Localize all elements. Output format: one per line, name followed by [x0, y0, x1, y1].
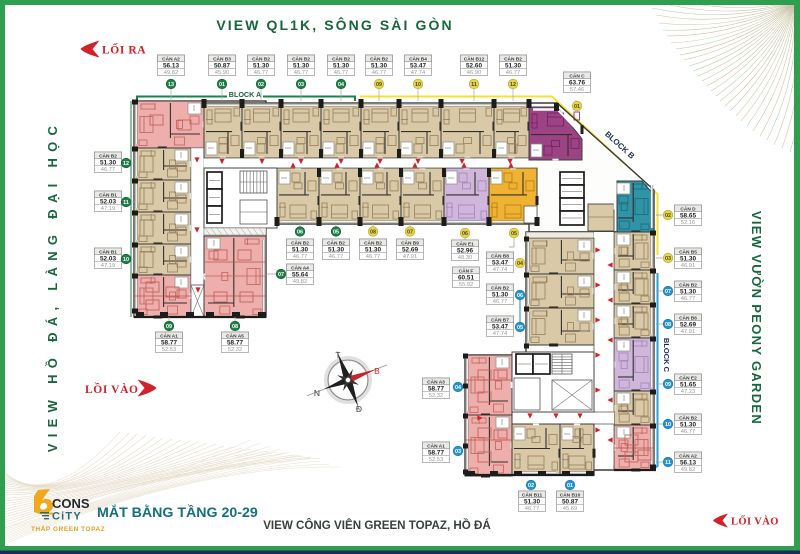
- svg-text:58.65: 58.65: [680, 212, 696, 219]
- svg-text:B: B: [374, 366, 380, 376]
- svg-text:46.77: 46.77: [294, 70, 309, 76]
- svg-text:CĂN A3: CĂN A3: [427, 378, 445, 385]
- svg-text:CĂN B8: CĂN B8: [491, 252, 509, 259]
- svg-text:55.64: 55.64: [292, 271, 308, 278]
- svg-text:51.30: 51.30: [371, 62, 387, 69]
- svg-text:46.77: 46.77: [329, 254, 344, 260]
- svg-text:52.03: 52.03: [100, 255, 116, 262]
- svg-text:46.77: 46.77: [366, 254, 381, 260]
- svg-text:CĂN E1: CĂN E1: [456, 240, 474, 247]
- svg-text:46.77: 46.77: [101, 167, 116, 173]
- svg-text:52.53: 52.53: [429, 457, 444, 463]
- svg-text:10: 10: [665, 422, 671, 428]
- svg-text:BLOCK A: BLOCK A: [229, 90, 261, 99]
- svg-text:05: 05: [511, 231, 517, 237]
- svg-text:07: 07: [407, 230, 413, 236]
- svg-text:52.69: 52.69: [402, 246, 418, 253]
- svg-text:45.90: 45.90: [215, 70, 230, 76]
- svg-text:11: 11: [471, 82, 477, 88]
- svg-text:47.74: 47.74: [493, 331, 508, 337]
- svg-text:CĂN B2: CĂN B2: [364, 239, 382, 246]
- svg-text:Đ: Đ: [356, 404, 362, 414]
- svg-text:50.87: 50.87: [214, 62, 230, 69]
- svg-text:60.51: 60.51: [458, 274, 474, 281]
- svg-text:08: 08: [232, 324, 238, 330]
- svg-text:CĂN B2: CĂN B2: [327, 239, 345, 246]
- svg-text:46.91: 46.91: [681, 263, 696, 269]
- svg-text:CONS: CONS: [52, 496, 90, 511]
- svg-text:52.96: 52.96: [457, 247, 473, 254]
- svg-text:CĂN C: CĂN C: [569, 72, 585, 79]
- svg-text:52.16: 52.16: [681, 220, 696, 226]
- svg-text:08: 08: [665, 322, 671, 328]
- svg-text:51.30: 51.30: [680, 255, 696, 262]
- svg-text:46.77: 46.77: [506, 70, 521, 76]
- svg-text:05: 05: [333, 230, 339, 236]
- svg-text:06: 06: [517, 293, 523, 299]
- svg-text:N: N: [314, 388, 320, 398]
- svg-text:CĂN B11: CĂN B11: [522, 491, 543, 498]
- svg-text:58.77: 58.77: [161, 339, 177, 346]
- svg-text:CiTY: CiTY: [52, 511, 82, 523]
- svg-text:51.30: 51.30: [292, 246, 308, 253]
- svg-text:CĂN B1: CĂN B1: [99, 248, 117, 255]
- svg-text:08: 08: [370, 230, 376, 236]
- svg-text:52.32: 52.32: [429, 393, 444, 399]
- svg-text:CĂN B2: CĂN B2: [332, 55, 350, 62]
- svg-text:LỐI VÀO: LỐI VÀO: [731, 515, 779, 528]
- svg-text:CĂN B10: CĂN B10: [560, 491, 581, 498]
- svg-text:07: 07: [278, 272, 284, 278]
- svg-text:09: 09: [376, 82, 382, 88]
- svg-text:51.30: 51.30: [333, 62, 349, 69]
- svg-text:LỒI VÀO: LỒI VÀO: [85, 381, 139, 396]
- svg-text:46.77: 46.77: [334, 70, 349, 76]
- svg-text:CĂN B2: CĂN B2: [504, 55, 522, 62]
- svg-text:51.30: 51.30: [100, 159, 116, 166]
- svg-text:09: 09: [665, 382, 671, 388]
- svg-text:03: 03: [665, 256, 671, 262]
- svg-text:CĂN A2: CĂN A2: [679, 452, 697, 459]
- svg-text:CĂN B2: CĂN B2: [679, 414, 697, 421]
- svg-text:52.69: 52.69: [680, 321, 696, 328]
- svg-text:46.77: 46.77: [372, 70, 387, 76]
- svg-text:CĂN B2: CĂN B2: [292, 55, 310, 62]
- svg-text:48.30: 48.30: [458, 255, 473, 261]
- svg-text:46.77: 46.77: [525, 506, 540, 512]
- svg-text:CĂN B4: CĂN B4: [409, 55, 427, 62]
- svg-text:MẮT BẰNG TẦNG 20-29: MẮT BẰNG TẦNG 20-29: [97, 503, 258, 521]
- svg-text:52.60: 52.60: [466, 62, 482, 69]
- svg-text:51.30: 51.30: [680, 288, 696, 295]
- svg-text:47.19: 47.19: [101, 263, 116, 269]
- svg-text:VIEW QL1K, SÔNG SÀI GÒN: VIEW QL1K, SÔNG SÀI GÒN: [216, 16, 453, 33]
- svg-text:51.30: 51.30: [253, 62, 269, 69]
- svg-text:CĂN B3: CĂN B3: [213, 55, 231, 62]
- svg-text:53.47: 53.47: [410, 62, 426, 69]
- svg-text:58.77: 58.77: [428, 449, 444, 456]
- svg-text:47.19: 47.19: [101, 206, 116, 212]
- svg-text:03: 03: [455, 449, 461, 455]
- svg-text:46.90: 46.90: [467, 70, 482, 76]
- svg-text:CĂN B2: CĂN B2: [679, 281, 697, 288]
- svg-text:04: 04: [455, 385, 461, 391]
- svg-text:58.77: 58.77: [227, 339, 243, 346]
- svg-text:CĂN B7: CĂN B7: [491, 316, 509, 323]
- svg-text:CĂN F: CĂN F: [459, 267, 474, 274]
- svg-text:52.32: 52.32: [228, 347, 243, 353]
- svg-text:THÁP GREEN TOPAZ: THÁP GREEN TOPAZ: [31, 524, 105, 533]
- svg-text:04: 04: [338, 82, 344, 88]
- svg-text:04: 04: [517, 261, 523, 267]
- svg-text:VIEW HỒ ĐÁ, LÀNG ĐẠI HỌC: VIEW HỒ ĐÁ, LÀNG ĐẠI HỌC: [45, 120, 60, 452]
- svg-text:CĂN B2: CĂN B2: [252, 55, 270, 62]
- svg-text:05: 05: [517, 325, 523, 331]
- svg-text:53.47: 53.47: [492, 323, 508, 330]
- svg-text:CĂN B5: CĂN B5: [679, 248, 697, 255]
- svg-text:56.13: 56.13: [163, 62, 179, 69]
- svg-text:51.30: 51.30: [328, 246, 344, 253]
- svg-text:LỐI RA: LỐI RA: [102, 42, 146, 57]
- svg-text:46.77: 46.77: [254, 70, 269, 76]
- svg-text:03: 03: [298, 82, 304, 88]
- svg-text:06: 06: [462, 231, 468, 237]
- svg-text:02: 02: [528, 483, 534, 489]
- svg-text:CĂN A1: CĂN A1: [427, 442, 445, 449]
- svg-text:46.77: 46.77: [493, 299, 508, 305]
- svg-text:51.30: 51.30: [293, 62, 309, 69]
- svg-text:49.82: 49.82: [164, 70, 179, 76]
- svg-text:45.69: 45.69: [563, 506, 578, 512]
- svg-text:VIEW VƯỜN PEONY GARDEN: VIEW VƯỜN PEONY GARDEN: [749, 211, 764, 425]
- svg-text:49.82: 49.82: [293, 279, 308, 285]
- svg-text:01: 01: [574, 104, 580, 110]
- svg-text:46.77: 46.77: [293, 254, 308, 260]
- svg-text:10: 10: [123, 257, 129, 263]
- svg-text:VIEW CÔNG VIÊN GREEN TOPAZ, HỒ: VIEW CÔNG VIÊN GREEN TOPAZ, HỒ ĐÁ: [263, 519, 491, 532]
- svg-text:47.74: 47.74: [493, 267, 508, 273]
- svg-text:53.47: 53.47: [492, 259, 508, 266]
- svg-text:51.65: 51.65: [680, 381, 696, 388]
- svg-text:CĂN B9: CĂN B9: [401, 239, 419, 246]
- svg-text:02: 02: [665, 213, 671, 219]
- svg-text:47.91: 47.91: [681, 329, 696, 335]
- svg-text:CĂN B12: CĂN B12: [464, 55, 485, 62]
- svg-text:46.77: 46.77: [681, 429, 696, 435]
- svg-text:CĂN A4: CĂN A4: [291, 264, 309, 271]
- svg-text:52.53: 52.53: [162, 347, 177, 353]
- svg-text:09: 09: [166, 324, 172, 330]
- svg-text:CĂN A1: CĂN A1: [160, 332, 178, 339]
- svg-text:51.30: 51.30: [492, 291, 508, 298]
- svg-text:50.87: 50.87: [562, 498, 578, 505]
- svg-text:CĂN B2: CĂN B2: [291, 239, 309, 246]
- svg-text:02: 02: [258, 82, 264, 88]
- svg-text:07: 07: [665, 289, 671, 295]
- svg-text:CĂN D: CĂN D: [680, 205, 696, 212]
- svg-text:13: 13: [168, 82, 174, 88]
- svg-text:12: 12: [510, 82, 516, 88]
- svg-text:58.77: 58.77: [428, 385, 444, 392]
- svg-text:51.30: 51.30: [365, 246, 381, 253]
- svg-text:11: 11: [123, 200, 129, 206]
- svg-text:47.74: 47.74: [411, 70, 426, 76]
- svg-text:56.13: 56.13: [680, 459, 696, 466]
- svg-text:55.92: 55.92: [459, 282, 474, 288]
- svg-text:01: 01: [219, 82, 225, 88]
- svg-text:12: 12: [123, 161, 129, 167]
- svg-text:01: 01: [567, 483, 573, 489]
- svg-text:CĂN B2: CĂN B2: [370, 55, 388, 62]
- svg-text:51.30: 51.30: [505, 62, 521, 69]
- svg-text:CĂN B2: CĂN B2: [99, 152, 117, 159]
- svg-text:51.30: 51.30: [680, 421, 696, 428]
- svg-text:11: 11: [665, 460, 671, 466]
- svg-text:CĂN E2: CĂN E2: [679, 374, 697, 381]
- svg-text:CĂN B6: CĂN B6: [679, 314, 697, 321]
- svg-text:10: 10: [415, 82, 421, 88]
- svg-text:BLOCK C: BLOCK C: [662, 338, 671, 373]
- svg-text:CĂN A2: CĂN A2: [162, 55, 180, 62]
- svg-text:49.82: 49.82: [681, 467, 696, 473]
- svg-text:47.91: 47.91: [403, 254, 418, 260]
- svg-text:46.77: 46.77: [681, 296, 696, 302]
- svg-text:52.03: 52.03: [100, 198, 116, 205]
- svg-text:57.46: 57.46: [570, 87, 585, 93]
- svg-text:CĂN B2: CĂN B2: [491, 284, 509, 291]
- svg-text:06: 06: [297, 230, 303, 236]
- svg-text:CĂN B1: CĂN B1: [99, 191, 117, 198]
- svg-text:47.23: 47.23: [681, 389, 696, 395]
- svg-text:CĂN A5: CĂN A5: [226, 332, 244, 339]
- svg-text:63.76: 63.76: [569, 79, 585, 86]
- svg-text:T: T: [335, 350, 340, 360]
- svg-text:51.30: 51.30: [524, 498, 540, 505]
